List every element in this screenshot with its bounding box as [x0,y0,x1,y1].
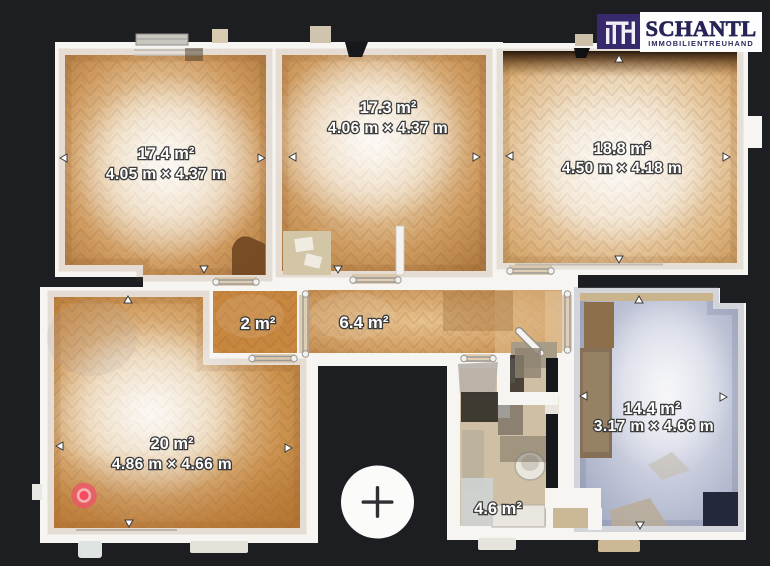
svg-text:20 m²: 20 m² [150,435,194,453]
svg-text:4.6 m²: 4.6 m² [474,500,522,518]
svg-text:SCHANTL: SCHANTL [646,16,757,41]
svg-text:3.17 m × 4.66 m: 3.17 m × 4.66 m [594,418,714,435]
svg-text:17.4 m²: 17.4 m² [138,145,195,163]
svg-text:4.86 m × 4.66 m: 4.86 m × 4.66 m [112,456,232,473]
svg-text:4.50 m × 4.18 m: 4.50 m × 4.18 m [562,160,682,177]
svg-text:4.05 m × 4.37 m: 4.05 m × 4.37 m [106,166,226,183]
svg-text:IMMOBILIENTREUHAND: IMMOBILIENTREUHAND [648,39,754,48]
svg-text:2 m²: 2 m² [241,314,276,333]
svg-text:4.06 m × 4.37 m: 4.06 m × 4.37 m [328,120,448,137]
svg-text:6.4 m²: 6.4 m² [339,313,388,332]
svg-text:14.4 m²: 14.4 m² [624,400,681,418]
svg-text:18.8 m²: 18.8 m² [594,140,651,158]
svg-text:17.3 m²: 17.3 m² [360,99,417,117]
